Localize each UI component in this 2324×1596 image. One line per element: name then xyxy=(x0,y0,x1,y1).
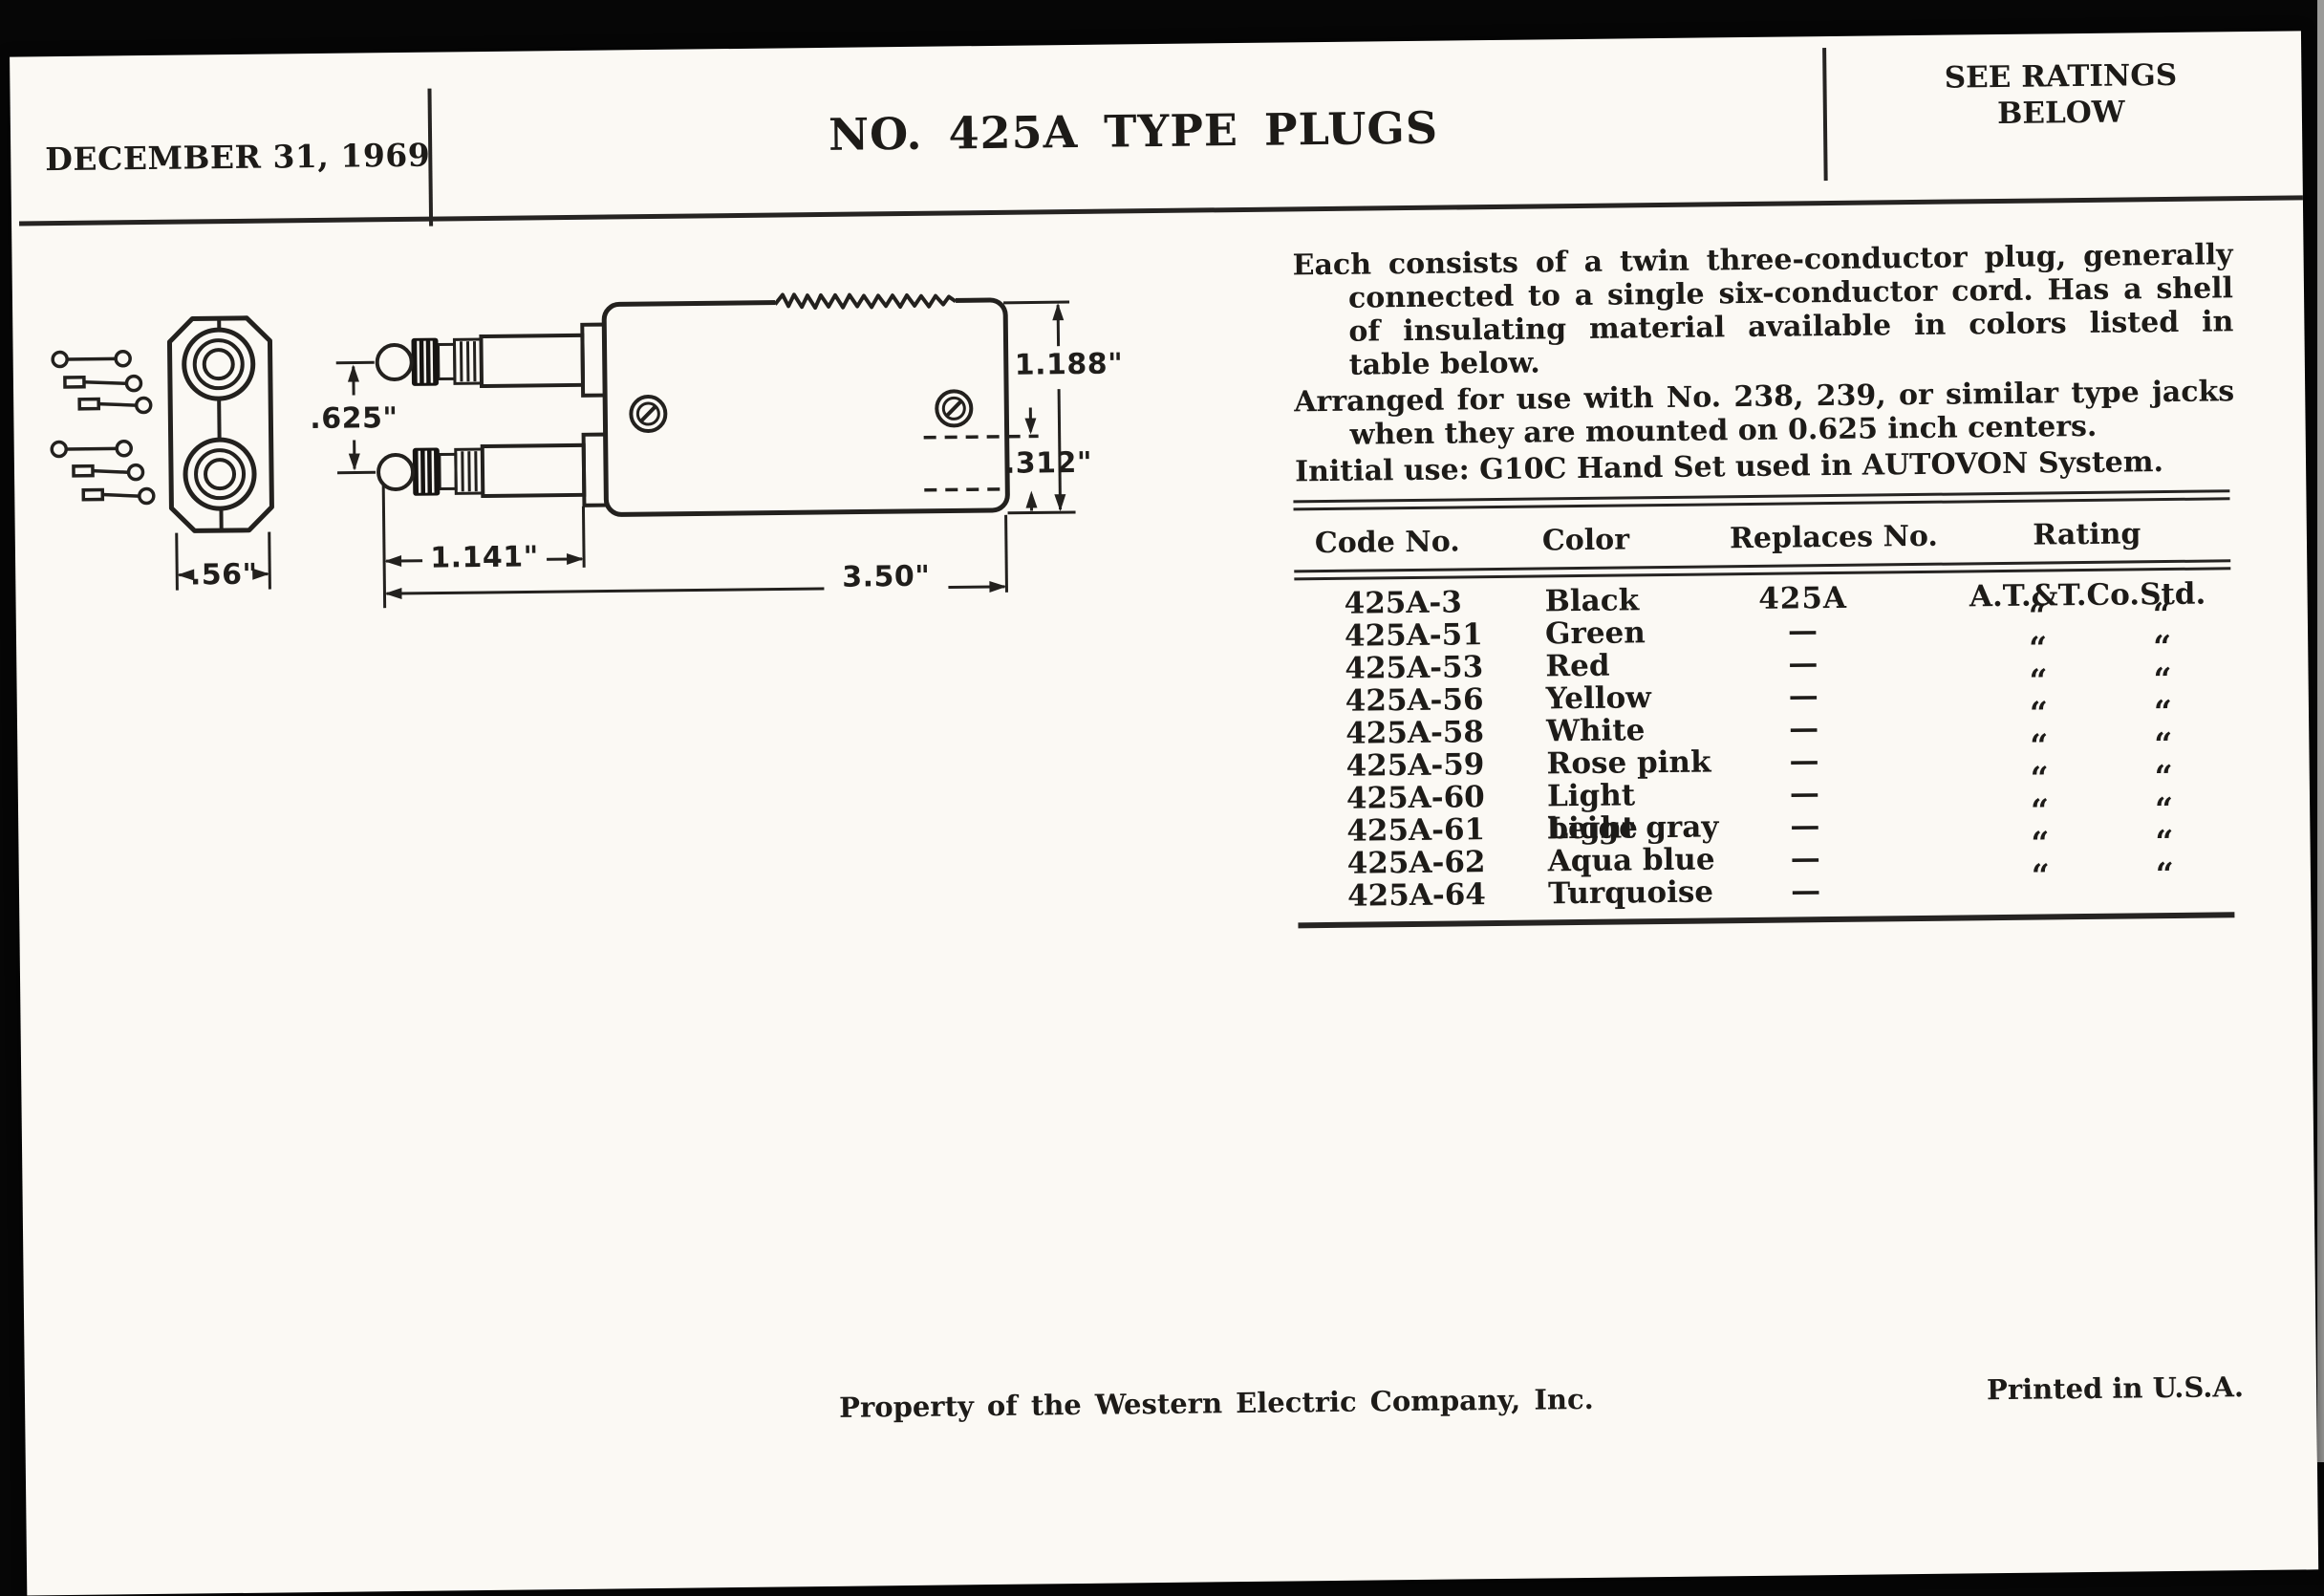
description-paragraph: Initial use: G10C Hand Set used in AUTOV… xyxy=(1295,444,2235,488)
plug-tip-lower xyxy=(378,435,607,508)
dim-label-tip-spacing: .625" xyxy=(306,401,401,436)
scan-edge-strip xyxy=(2317,0,2324,1462)
dim-label-body-height: 1.188" xyxy=(1015,348,1114,382)
printed-note: Printed in U.S.A. xyxy=(1987,1370,2244,1406)
dim-label-overall-length: 3.50" xyxy=(824,559,948,593)
ditto-mark: “ xyxy=(2153,631,2171,663)
ditto-mark: “ xyxy=(2029,632,2047,664)
cell-code: 425A-58 xyxy=(1296,716,1506,750)
cell-color: Yellow xyxy=(1506,680,1726,716)
ditto-mark: “ xyxy=(2029,599,2047,632)
screw-right xyxy=(936,391,971,425)
cell-rating: ““ xyxy=(1947,805,2233,840)
cell-rating: ““ xyxy=(1947,837,2234,873)
ratings-table: Code No. Color Replaces No. Rating 425A-… xyxy=(1293,489,2234,928)
ditto-mark: “ xyxy=(2153,663,2171,696)
cell-rating: ““ xyxy=(1946,707,2232,743)
description-text: Each consists of a twin three-conductor … xyxy=(1292,238,2235,491)
ditto-mark: “ xyxy=(2153,598,2171,631)
column-header-replaces: Replaces No. xyxy=(1724,520,1944,556)
plug-end-view xyxy=(169,318,272,531)
ditto-mark: “ xyxy=(2154,696,2172,728)
cell-color: White xyxy=(1506,713,1726,748)
plug-tip-upper xyxy=(377,325,605,399)
cell-replaces: — xyxy=(1726,711,1946,746)
column-header-color: Color xyxy=(1504,522,1724,558)
plug-shell-body xyxy=(604,291,1040,514)
table-header-row: Code No. Color Replaces No. Rating xyxy=(1294,500,2231,570)
cell-code: 425A-62 xyxy=(1298,846,1508,880)
ditto-mark: “ xyxy=(2031,762,2049,794)
cell-color: Black xyxy=(1504,583,1724,618)
cell-replaces: — xyxy=(1726,744,1946,779)
cell-color: Turquoise xyxy=(1508,875,1728,911)
offset-dashed-line-lower xyxy=(924,489,1005,490)
scanned-document: { "header": { "date": "DECEMBER 31, 1969… xyxy=(0,0,2324,1462)
contact-schematic xyxy=(51,351,154,504)
ditto-mark: “ xyxy=(2155,793,2173,826)
cell-replaces: — xyxy=(1728,873,1947,909)
property-note: Property of the Western Electric Company… xyxy=(839,1383,1594,1424)
cell-replaces: — xyxy=(1727,809,1947,844)
plug-side-view xyxy=(377,291,1040,517)
dim-label-lower-offset: .312" xyxy=(1001,446,1096,481)
cell-code: 425A-59 xyxy=(1296,748,1506,783)
ratings-note-line1: SEE RATINGS xyxy=(1825,55,2295,97)
ratings-table-rows: 425A-3Black425AA.T.&T.Co.Std.425A-51Gree… xyxy=(1294,570,2234,922)
ditto-mark: “ xyxy=(2155,826,2173,858)
cell-rating: A.T.&T.Co.Std. xyxy=(1944,577,2230,613)
cell-rating: ““ xyxy=(1945,610,2231,645)
cell-color: Aqua blue xyxy=(1508,843,1728,878)
ditto-mark: “ xyxy=(2030,729,2048,762)
ditto-mark: “ xyxy=(2031,794,2049,827)
cell-rating: ““ xyxy=(1946,675,2232,710)
ditto-mark: “ xyxy=(2032,859,2050,892)
ditto-mark: “ xyxy=(2156,858,2174,891)
cell-color: Green xyxy=(1505,615,1725,651)
offset-dashed-line-upper xyxy=(924,436,1039,437)
ratings-note-line2: BELOW xyxy=(1826,92,2296,134)
ditto-mark: “ xyxy=(2029,664,2047,697)
column-header-rating: Rating xyxy=(1944,516,2230,552)
screw-left xyxy=(631,397,665,431)
document-page: DECEMBER 31, 1969 NO. 425A TYPE PLUGS SE… xyxy=(10,31,2318,1595)
cell-code: 425A-51 xyxy=(1295,618,1505,653)
cell-code: 425A-3 xyxy=(1294,586,1504,620)
dim-label-tip-length: 1.141" xyxy=(422,540,547,574)
cell-code: 425A-53 xyxy=(1295,651,1505,685)
column-header-code: Code No. xyxy=(1294,525,1504,560)
ditto-mark: “ xyxy=(2031,827,2049,859)
ditto-mark: “ xyxy=(2154,728,2172,761)
cell-replaces: — xyxy=(1725,614,1945,649)
cell-color: Light gray xyxy=(1507,810,1727,846)
description-paragraph: Arranged for use with No. 238, 239, or s… xyxy=(1294,375,2235,452)
cell-replaces: 425A xyxy=(1724,581,1944,616)
cell-replaces: — xyxy=(1726,679,1946,714)
cell-color: Red xyxy=(1505,648,1725,683)
description-paragraph: Each consists of a twin three-conductor … xyxy=(1292,238,2234,382)
cell-code: 425A-64 xyxy=(1298,878,1508,913)
cell-code: 425A-56 xyxy=(1296,683,1506,718)
ditto-mark: “ xyxy=(2030,697,2048,729)
cell-rating: ““ xyxy=(1946,740,2232,775)
ratings-note: SEE RATINGS BELOW xyxy=(1825,55,2296,134)
cell-code: 425A-61 xyxy=(1297,813,1507,848)
cell-color: Rose pink xyxy=(1506,745,1726,781)
ditto-mark: “ xyxy=(2155,761,2173,793)
cell-rating: ““ xyxy=(1945,642,2231,678)
cell-rating: ““ xyxy=(1947,870,2234,905)
cell-replaces: — xyxy=(1728,841,1947,876)
dim-label-end-width: .56" xyxy=(180,558,268,593)
cell-replaces: — xyxy=(1725,646,1945,681)
plug-technical-drawing xyxy=(10,44,1164,726)
